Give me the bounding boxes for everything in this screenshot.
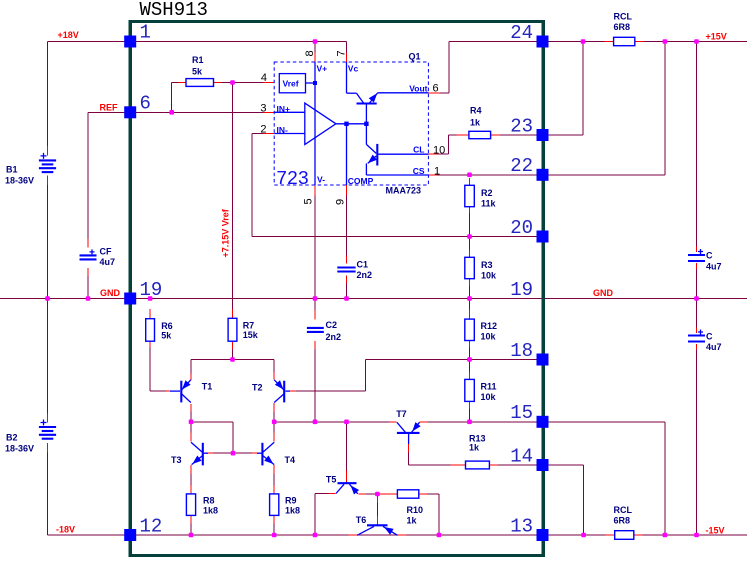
svg-text:24: 24 <box>510 22 533 44</box>
svg-text:T4: T4 <box>285 455 296 465</box>
svg-text:2n2: 2n2 <box>357 270 373 280</box>
svg-text:CL: CL <box>413 145 424 155</box>
svg-text:R8: R8 <box>203 496 215 506</box>
svg-text:C: C <box>706 250 713 260</box>
svg-text:4u7: 4u7 <box>706 342 722 352</box>
svg-text:T2: T2 <box>252 383 263 393</box>
svg-text:R12: R12 <box>481 321 498 331</box>
svg-text:WSH913: WSH913 <box>140 0 208 21</box>
svg-text:CF: CF <box>100 246 112 256</box>
svg-text:18-36V: 18-36V <box>5 175 34 185</box>
svg-text:1k: 1k <box>470 118 481 128</box>
svg-text:IN+: IN+ <box>277 104 291 114</box>
svg-text:13: 13 <box>510 515 533 537</box>
svg-text:-18V: -18V <box>56 525 75 535</box>
svg-text:1k8: 1k8 <box>285 506 300 516</box>
svg-text:22: 22 <box>510 155 533 177</box>
svg-text:T3: T3 <box>171 455 182 465</box>
svg-text:IN-: IN- <box>277 125 289 135</box>
svg-text:C: C <box>706 331 713 341</box>
svg-text:COMP: COMP <box>348 176 374 186</box>
svg-text:19: 19 <box>140 279 163 301</box>
svg-text:6: 6 <box>433 82 439 94</box>
svg-text:Q1: Q1 <box>409 52 421 62</box>
svg-text:R4: R4 <box>470 106 482 116</box>
svg-text:1k: 1k <box>469 443 480 453</box>
svg-text:RCL: RCL <box>614 11 633 21</box>
svg-text:MAA723: MAA723 <box>386 185 422 195</box>
svg-text:R11: R11 <box>481 382 497 392</box>
svg-text:+15V: +15V <box>706 32 727 42</box>
svg-text:GND: GND <box>100 288 121 298</box>
svg-text:4u7: 4u7 <box>100 257 116 267</box>
svg-text:REF: REF <box>100 102 119 112</box>
svg-text:6R8: 6R8 <box>614 516 631 526</box>
svg-text:8: 8 <box>304 50 316 56</box>
svg-text:9: 9 <box>335 199 347 205</box>
svg-text:+7.15V Vref: +7.15V Vref <box>221 208 231 257</box>
svg-text:6: 6 <box>140 93 151 115</box>
svg-text:4: 4 <box>261 72 267 84</box>
svg-text:2: 2 <box>260 123 266 135</box>
svg-text:23: 23 <box>510 115 533 137</box>
svg-text:R7: R7 <box>243 321 255 331</box>
svg-text:RCL: RCL <box>614 505 633 515</box>
svg-text:1: 1 <box>140 22 151 44</box>
svg-text:18-36V: 18-36V <box>5 444 34 454</box>
svg-text:V-: V- <box>317 174 325 184</box>
svg-text:Vout: Vout <box>409 83 427 93</box>
svg-text:R2: R2 <box>481 188 493 198</box>
svg-text:Vref: Vref <box>283 78 299 88</box>
svg-text:T5: T5 <box>326 474 337 484</box>
svg-text:R9: R9 <box>285 496 297 506</box>
svg-text:T1: T1 <box>202 382 213 392</box>
svg-text:+18V: +18V <box>58 30 79 40</box>
svg-text:CS: CS <box>413 166 425 176</box>
svg-text:723: 723 <box>276 168 309 190</box>
svg-text:V+: V+ <box>317 64 328 74</box>
svg-text:C1: C1 <box>357 259 369 269</box>
svg-text:20: 20 <box>510 217 533 239</box>
svg-text:1k: 1k <box>407 516 418 526</box>
svg-text:1: 1 <box>434 165 440 177</box>
svg-text:10k: 10k <box>481 332 497 342</box>
svg-text:11k: 11k <box>481 199 497 209</box>
svg-text:10: 10 <box>433 145 445 157</box>
svg-text:-15V: -15V <box>706 526 725 536</box>
svg-text:6R8: 6R8 <box>614 22 631 32</box>
svg-text:GND: GND <box>593 288 614 298</box>
svg-text:3: 3 <box>260 102 266 114</box>
svg-text:T6: T6 <box>356 515 367 525</box>
svg-text:2n2: 2n2 <box>326 332 342 342</box>
svg-text:1k8: 1k8 <box>203 506 218 516</box>
svg-text:15: 15 <box>510 402 533 424</box>
svg-text:B1: B1 <box>6 164 18 174</box>
svg-text:T7: T7 <box>396 409 407 419</box>
svg-text:B2: B2 <box>6 433 18 443</box>
svg-text:10k: 10k <box>481 392 497 402</box>
svg-text:5k: 5k <box>192 67 203 77</box>
svg-text:C2: C2 <box>326 320 338 330</box>
svg-text:7: 7 <box>336 50 348 56</box>
svg-text:R1: R1 <box>192 55 204 65</box>
svg-text:R10: R10 <box>407 505 424 515</box>
svg-text:12: 12 <box>140 515 163 537</box>
svg-text:18: 18 <box>510 340 533 362</box>
svg-text:5: 5 <box>303 198 315 204</box>
svg-text:5k: 5k <box>161 330 172 340</box>
svg-text:4u7: 4u7 <box>706 261 722 271</box>
svg-text:15k: 15k <box>243 330 259 340</box>
svg-text:R3: R3 <box>481 260 493 270</box>
svg-text:10k: 10k <box>481 271 497 281</box>
svg-text:19: 19 <box>510 279 533 301</box>
svg-text:14: 14 <box>510 445 533 467</box>
svg-text:Vc: Vc <box>348 64 359 74</box>
